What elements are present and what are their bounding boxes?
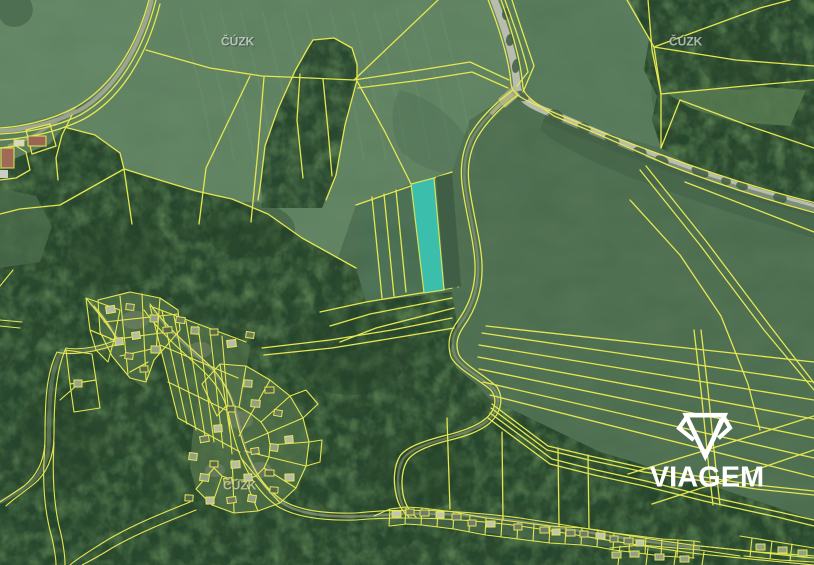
svg-text:ČÚZK: ČÚZK <box>669 34 703 49</box>
svg-text:VIAGEM: VIAGEM <box>650 462 764 494</box>
svg-text:ČÚZK: ČÚZK <box>221 34 255 49</box>
svg-text:ČÚZK: ČÚZK <box>223 478 257 493</box>
